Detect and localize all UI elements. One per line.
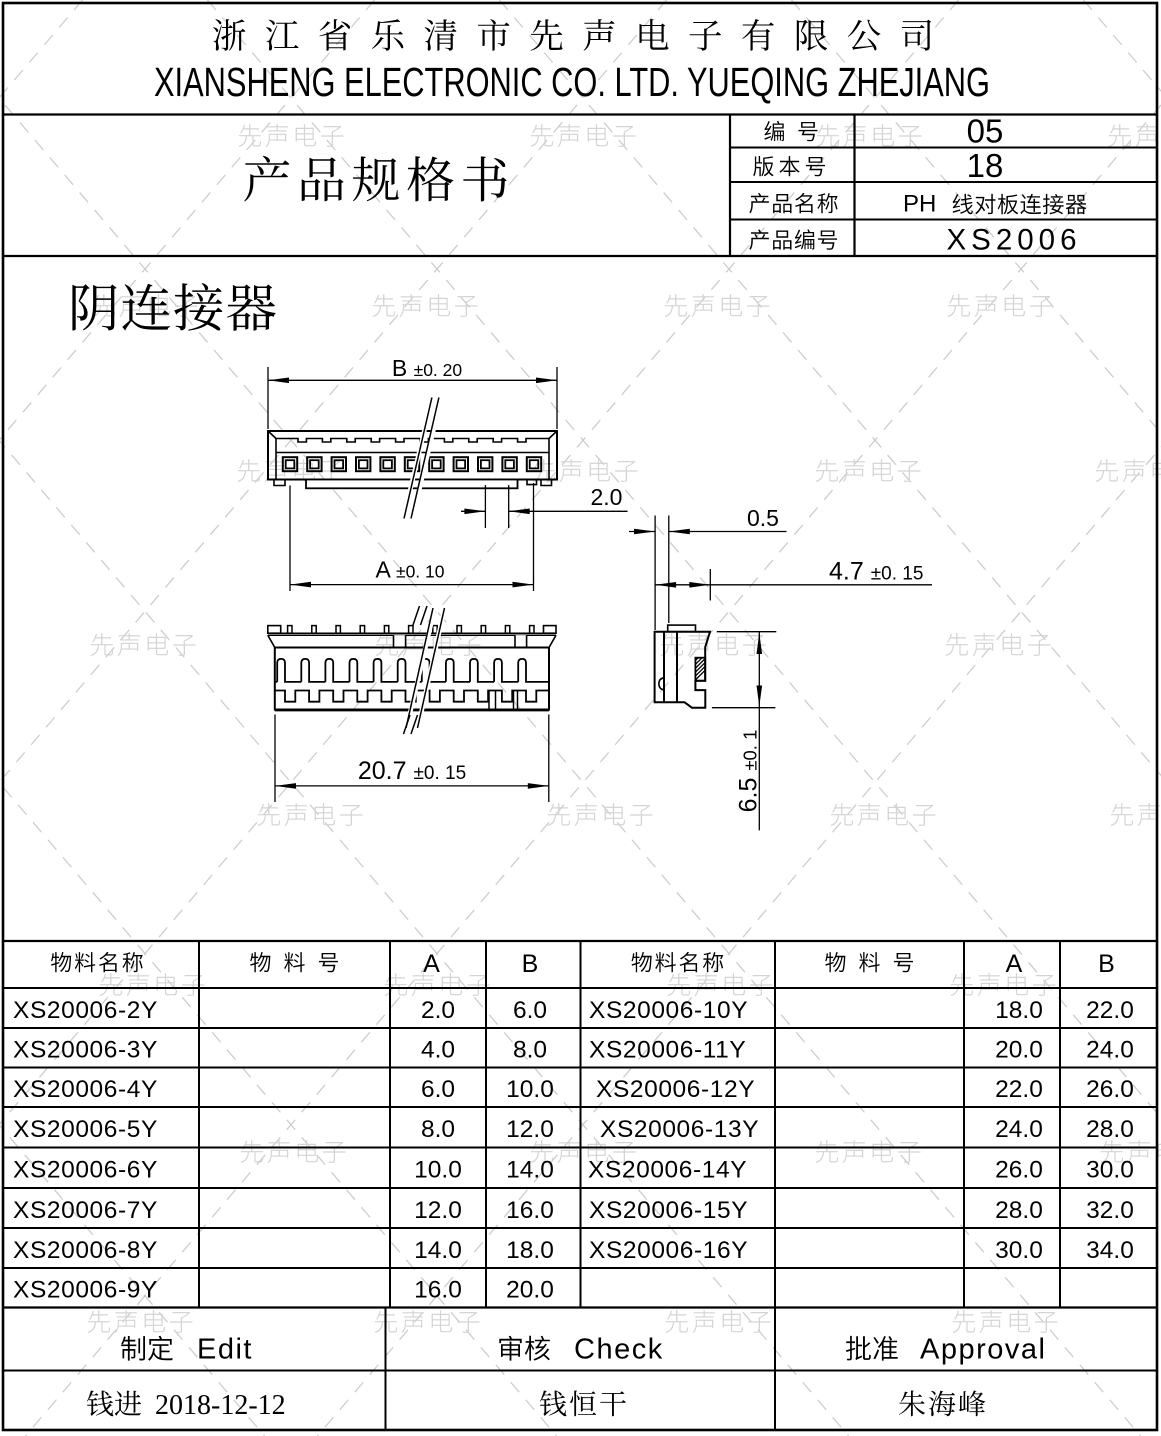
svg-text:6.5 ±0. 1: 6.5 ±0. 1 bbox=[735, 730, 763, 813]
svg-text:XS20006-5Y: XS20006-5Y bbox=[13, 1116, 158, 1143]
svg-text:4.0: 4.0 bbox=[421, 1036, 455, 1063]
svg-text:XS20006-15Y: XS20006-15Y bbox=[589, 1197, 748, 1224]
svg-text:0.5: 0.5 bbox=[747, 505, 779, 531]
svg-text:PH: PH bbox=[903, 191, 936, 218]
svg-text:24.0: 24.0 bbox=[1086, 1036, 1134, 1063]
svg-text:12.0: 12.0 bbox=[414, 1197, 462, 1224]
svg-text:B: B bbox=[1098, 950, 1115, 978]
svg-text:8.0: 8.0 bbox=[421, 1116, 455, 1143]
svg-text:20.7 ±0. 15: 20.7 ±0. 15 bbox=[358, 757, 466, 785]
svg-text:2018-12-12: 2018-12-12 bbox=[155, 1390, 286, 1421]
svg-text:4.7 ±0. 15: 4.7 ±0. 15 bbox=[829, 558, 923, 586]
svg-text:XS20006-8Y: XS20006-8Y bbox=[13, 1237, 158, 1264]
svg-text:28.0: 28.0 bbox=[995, 1197, 1043, 1224]
svg-text:14.0: 14.0 bbox=[414, 1237, 462, 1264]
svg-text:6.0: 6.0 bbox=[421, 1076, 455, 1103]
svg-text:XS20006-10Y: XS20006-10Y bbox=[589, 997, 748, 1024]
svg-text:14.0: 14.0 bbox=[506, 1156, 554, 1183]
svg-text:26.0: 26.0 bbox=[995, 1156, 1043, 1183]
svg-text:XS20006-7Y: XS20006-7Y bbox=[13, 1197, 158, 1224]
svg-text:XS20006-6Y: XS20006-6Y bbox=[13, 1156, 158, 1183]
svg-text:20.0: 20.0 bbox=[506, 1276, 554, 1303]
svg-text:Approval: Approval bbox=[920, 1334, 1046, 1366]
svg-text:XIANSHENG ELECTRONIC CO. LTD.: XIANSHENG ELECTRONIC CO. LTD. YUEQING ZH… bbox=[154, 59, 990, 105]
svg-text:30.0: 30.0 bbox=[995, 1237, 1043, 1264]
svg-text:XS2006: XS2006 bbox=[947, 224, 1082, 257]
svg-text:A ±0. 10: A ±0. 10 bbox=[376, 556, 445, 582]
svg-text:30.0: 30.0 bbox=[1086, 1156, 1134, 1183]
svg-text:18.0: 18.0 bbox=[995, 997, 1043, 1024]
svg-text:26.0: 26.0 bbox=[1086, 1076, 1134, 1103]
svg-text:XS20006-14Y: XS20006-14Y bbox=[588, 1156, 747, 1183]
svg-text:16.0: 16.0 bbox=[414, 1276, 462, 1303]
svg-text:B: B bbox=[522, 950, 539, 978]
svg-text:34.0: 34.0 bbox=[1086, 1237, 1134, 1264]
svg-text:Check: Check bbox=[574, 1334, 664, 1366]
svg-text:6.0: 6.0 bbox=[513, 997, 547, 1024]
svg-text:A: A bbox=[423, 950, 440, 978]
svg-text:XS20006-13Y: XS20006-13Y bbox=[600, 1116, 759, 1143]
svg-text:28.0: 28.0 bbox=[1086, 1116, 1134, 1143]
svg-text:2.0: 2.0 bbox=[591, 484, 623, 510]
svg-text:A: A bbox=[1006, 950, 1023, 978]
svg-text:24.0: 24.0 bbox=[995, 1116, 1043, 1143]
svg-text:16.0: 16.0 bbox=[506, 1197, 554, 1224]
svg-text:32.0: 32.0 bbox=[1086, 1197, 1134, 1224]
svg-text:XS20006-3Y: XS20006-3Y bbox=[13, 1036, 158, 1063]
svg-text:05: 05 bbox=[967, 113, 1004, 150]
svg-text:22.0: 22.0 bbox=[1086, 997, 1134, 1024]
svg-text:XS20006-4Y: XS20006-4Y bbox=[13, 1076, 158, 1103]
svg-text:18: 18 bbox=[967, 147, 1004, 184]
svg-text:XS20006-12Y: XS20006-12Y bbox=[596, 1076, 755, 1103]
svg-text:XS20006-9Y: XS20006-9Y bbox=[13, 1276, 158, 1303]
svg-text:XS20006-11Y: XS20006-11Y bbox=[589, 1036, 746, 1063]
svg-text:10.0: 10.0 bbox=[414, 1156, 462, 1183]
svg-text:2.0: 2.0 bbox=[421, 997, 455, 1024]
svg-text:12.0: 12.0 bbox=[506, 1116, 554, 1143]
svg-text:10.0: 10.0 bbox=[506, 1076, 554, 1103]
svg-text:18.0: 18.0 bbox=[506, 1237, 554, 1264]
svg-text:B ±0. 20: B ±0. 20 bbox=[392, 355, 463, 381]
svg-text:XS20006-2Y: XS20006-2Y bbox=[13, 997, 158, 1024]
svg-text:8.0: 8.0 bbox=[513, 1036, 547, 1063]
svg-text:20.0: 20.0 bbox=[995, 1036, 1043, 1063]
svg-text:Edit: Edit bbox=[197, 1334, 253, 1366]
svg-text:22.0: 22.0 bbox=[995, 1076, 1043, 1103]
svg-text:XS20006-16Y: XS20006-16Y bbox=[589, 1237, 748, 1264]
